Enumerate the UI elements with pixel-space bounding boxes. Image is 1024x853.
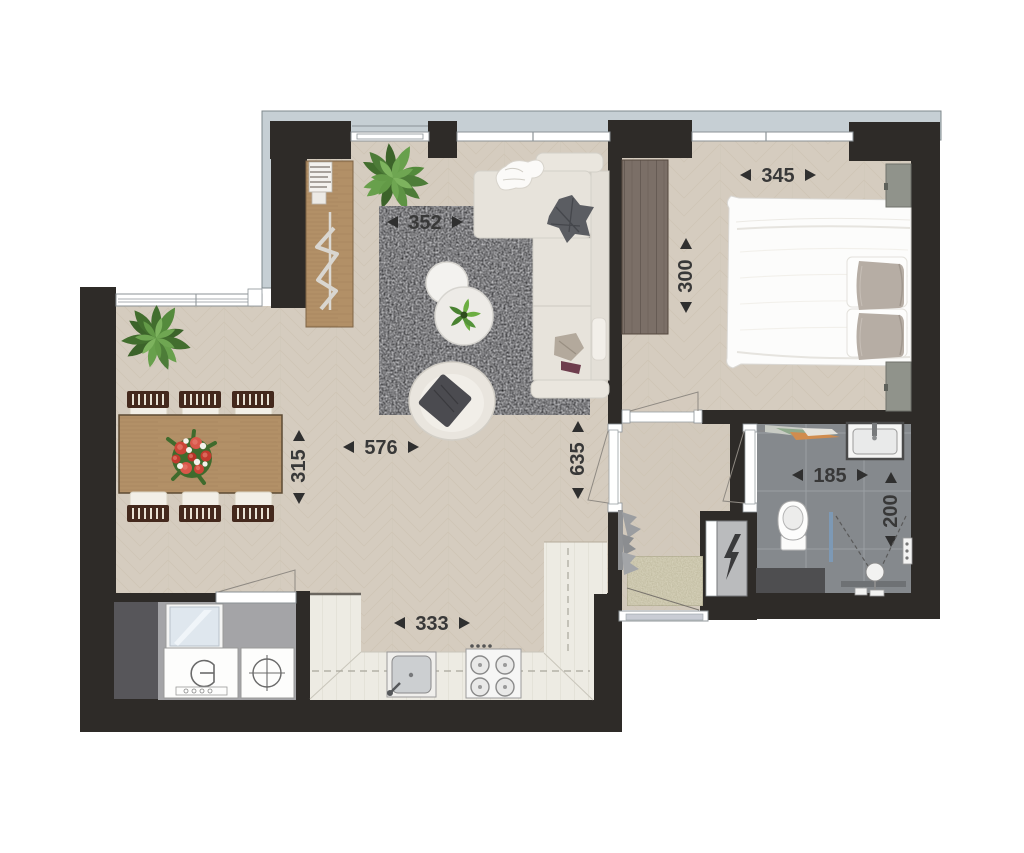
svg-text:345: 345 <box>761 165 794 187</box>
svg-text:185: 185 <box>813 465 846 487</box>
svg-text:200: 200 <box>880 494 902 527</box>
svg-text:300: 300 <box>675 259 697 292</box>
svg-text:352: 352 <box>408 212 441 234</box>
svg-text:315: 315 <box>288 449 310 482</box>
svg-text:333: 333 <box>415 613 448 635</box>
svg-text:576: 576 <box>364 437 397 459</box>
svg-text:635: 635 <box>567 442 589 475</box>
